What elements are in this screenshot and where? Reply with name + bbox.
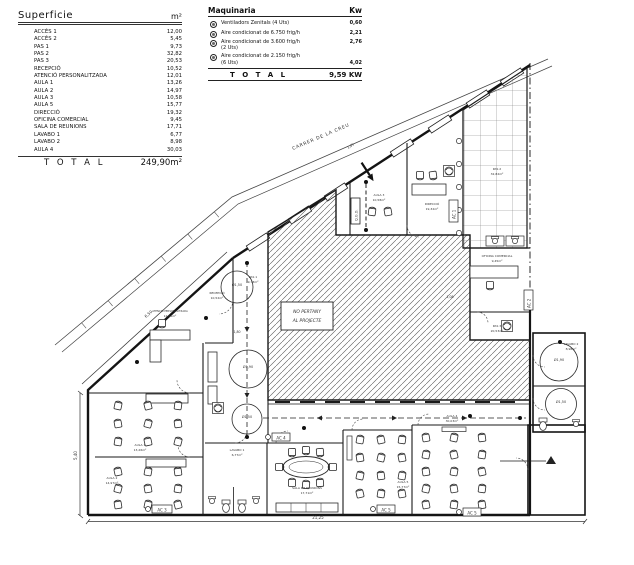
room-label: AULA 1 <box>135 443 146 447</box>
room-label: AULA 5 <box>398 480 409 484</box>
dimension-bottom: 21,25 <box>312 515 324 520</box>
fan-coil-icon <box>444 166 455 177</box>
room-label: DIRECCIÓ <box>425 201 440 206</box>
room-label: OFICINA COMERCIAL <box>482 254 513 258</box>
atencio-desk <box>150 320 190 363</box>
window-icon <box>428 115 451 133</box>
desk <box>470 266 518 278</box>
ac-label: AC 3 <box>157 508 167 513</box>
room-area-label: 9,73m² <box>248 280 260 284</box>
chair-icon <box>429 171 437 180</box>
electrical-panel: Q.G.D. <box>351 198 360 224</box>
room-area-label: 9,45m² <box>492 259 504 263</box>
room-area-label: 10,58m² <box>373 198 387 202</box>
teacher-desk <box>146 394 188 403</box>
circle-diameter-label: Ø1,50 <box>232 282 242 287</box>
ac-label: AC 2 <box>527 298 532 308</box>
room-area-label: 8,98m² <box>566 347 578 351</box>
cabinet <box>208 352 217 382</box>
chair-icon <box>368 207 376 216</box>
ac-label: AC 4 <box>276 436 286 441</box>
dimension-corridor: 1,80 <box>233 330 240 334</box>
room-area-label: 30,03m² <box>446 419 460 423</box>
room-area-label: 14,97m² <box>106 481 120 485</box>
circle-diameter-label: Ø1,50 <box>556 399 566 404</box>
room-label: SALA DE REUNIONS <box>292 486 322 490</box>
circle-diameter-label: Ø1,90 <box>243 364 253 369</box>
teacher-desk <box>146 459 186 467</box>
chair-icon <box>384 207 392 216</box>
room-label: PAS 2 <box>493 167 502 171</box>
room-area-label: 17,71m² <box>301 491 315 495</box>
architectural-drawing-page: { "superficie_table": { "title": "Superf… <box>0 0 634 565</box>
room-area-label: 12,01m² <box>164 314 178 318</box>
room-label: LAVABO 2 <box>564 342 579 346</box>
chair-icon <box>417 172 424 180</box>
ac-label: AC 5 <box>467 511 477 516</box>
room-area-label: 15,77m² <box>397 485 411 489</box>
aula4-chairs <box>422 433 487 510</box>
panel-label: Q.G.D. <box>355 210 359 222</box>
dimension-left: 5,40 <box>73 451 78 460</box>
street-name-label: CARRER DE LA CREU <box>291 122 350 152</box>
room-area-label: 6,77m² <box>232 453 244 457</box>
skylight-room <box>456 68 530 248</box>
aula1-chairs <box>114 400 183 446</box>
bottom-right-room <box>528 425 585 515</box>
room-label: ATENCIÓ PERSONALITZADA <box>152 308 188 313</box>
room-area-label: 20,53m² <box>491 329 505 333</box>
lavabo2-block <box>533 333 585 432</box>
lavabo1-fixtures <box>208 497 259 513</box>
whiteboard <box>442 427 466 432</box>
desk <box>412 184 446 195</box>
room-label: PAS 1 <box>249 275 258 279</box>
excluded-label-line2: AL PROJECTE <box>292 318 322 324</box>
meeting-room-furniture <box>276 446 339 512</box>
window-icon <box>246 233 269 251</box>
whiteboard <box>347 436 352 460</box>
excluded-label-line1: NO PERTANY <box>293 309 321 315</box>
room-label: LAVABO 1 <box>230 448 245 452</box>
fan-coil-icon <box>213 403 224 414</box>
room-area-label: 10,52m² <box>211 296 225 300</box>
entrance-arrow-icon <box>359 161 376 183</box>
floor-plan: CARRER DE LA CREU 1,05 NO PERTANY AL PRO… <box>0 0 634 565</box>
room-label: RECEPCIÓ <box>209 290 225 295</box>
room-label: AULA 4 <box>447 414 458 418</box>
room-area-label: 19,32m² <box>426 207 440 211</box>
chair-icon <box>487 282 494 290</box>
dimension-office: 1,08 <box>446 295 453 299</box>
room-area-label: 13,26m² <box>134 448 148 452</box>
room-label: PAS 3 <box>493 324 502 328</box>
ac-label: AC 1 <box>452 209 457 219</box>
segmented-wall <box>268 402 530 404</box>
section-marker-icon <box>546 456 556 464</box>
room-area-label: 32,82m² <box>491 172 505 176</box>
cabinet <box>208 386 217 404</box>
circle-diameter-label: Ø1,90 <box>554 357 564 362</box>
window-icon <box>390 139 413 157</box>
room-label: AULA 3 <box>374 193 385 197</box>
excluded-label-box <box>281 302 333 330</box>
aula2-chairs <box>114 467 183 510</box>
room-label: AULA 2 <box>107 476 118 480</box>
ac-label: AC 5 <box>381 508 391 513</box>
